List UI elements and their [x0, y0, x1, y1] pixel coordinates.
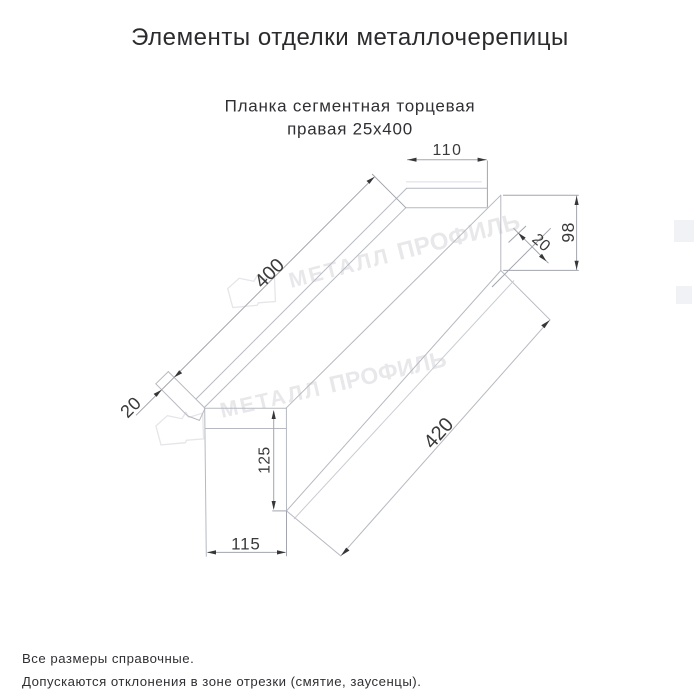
svg-text:98: 98 [558, 222, 578, 242]
svg-text:115: 115 [231, 534, 261, 553]
svg-text:125: 125 [257, 446, 274, 473]
svg-text:правая 25х400: правая 25х400 [287, 120, 413, 139]
svg-text:Допускаются отклонения в зоне: Допускаются отклонения в зоне отрезки (с… [22, 674, 421, 689]
svg-text:110: 110 [433, 142, 463, 159]
svg-text:Планка сегментная торцевая: Планка сегментная торцевая [225, 97, 476, 116]
svg-text:Элементы отделки металлочерепи: Элементы отделки металлочерепицы [131, 24, 569, 51]
svg-text:Все размеры справочные.: Все размеры справочные. [22, 651, 194, 666]
